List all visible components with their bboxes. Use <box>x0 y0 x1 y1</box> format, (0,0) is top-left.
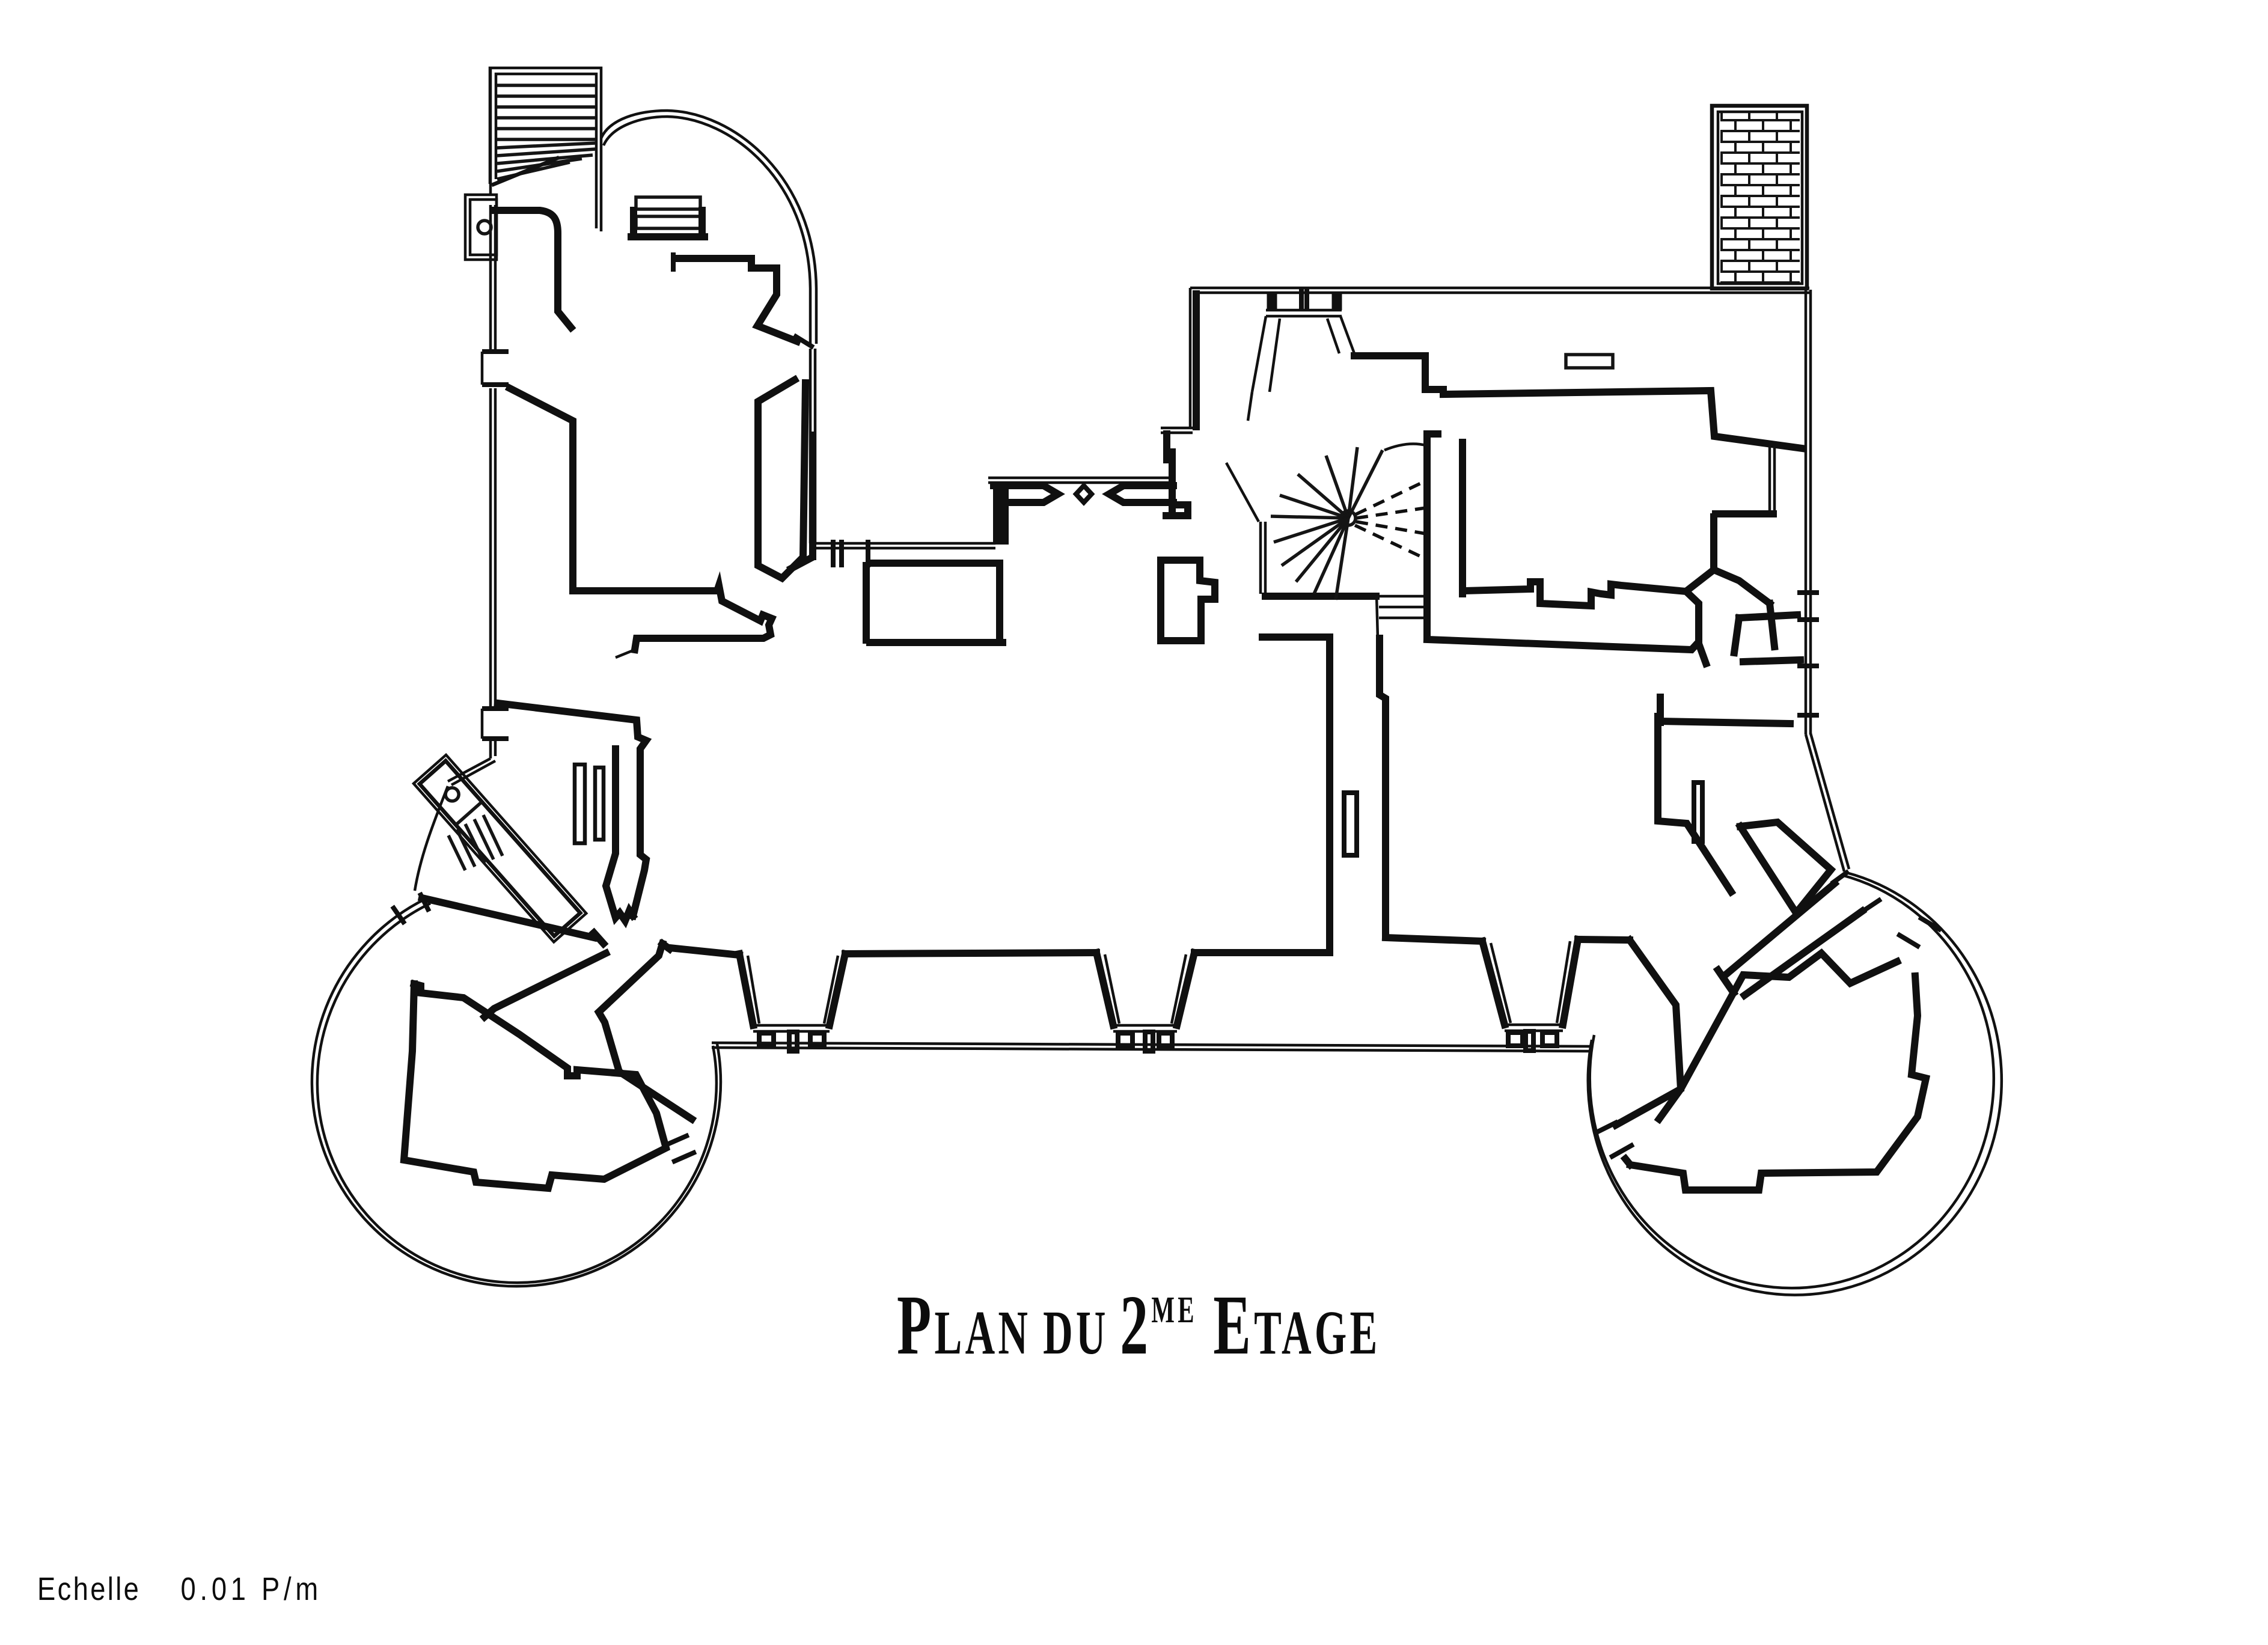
svg-text:Echelle: Echelle <box>37 1570 141 1607</box>
svg-text:0.01 P/m: 0.01 P/m <box>181 1570 322 1607</box>
